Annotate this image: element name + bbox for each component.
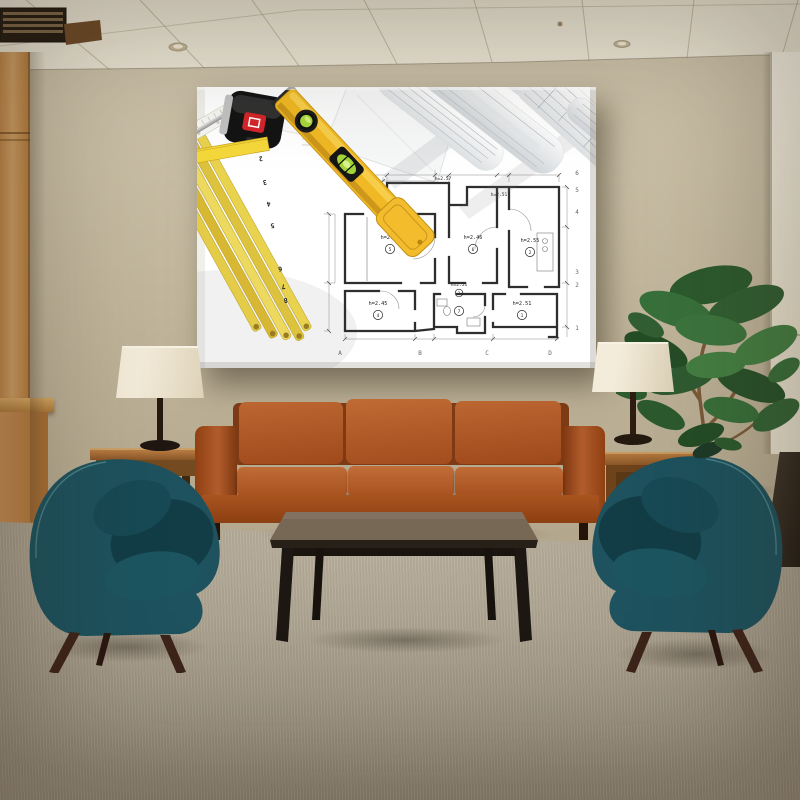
ceiling-surface <box>0 0 800 70</box>
room-height-label: h=2.51 <box>513 301 532 307</box>
armchair-leg <box>626 632 652 673</box>
table-lamp-left <box>116 346 204 462</box>
grid-column-label: D <box>548 350 552 357</box>
room-number: 7 <box>458 309 461 315</box>
grid-column-label: C <box>485 350 489 357</box>
coffee-table-leg <box>312 548 324 620</box>
coffee-table-edge <box>270 540 538 548</box>
plant-frond <box>688 432 748 472</box>
coffee-table-apron <box>290 548 518 556</box>
armchair-right <box>582 445 800 675</box>
coffee-table <box>264 506 544 654</box>
waiting-room-scene: h=2.48 5 h=2.46 6 h=2.55 2 h=2.45 4 7 h=… <box>0 0 800 800</box>
armchair-leg <box>96 633 111 666</box>
grid-row-label: 6 <box>575 170 579 177</box>
recessed-light <box>169 43 187 51</box>
wood-panel-seam <box>0 132 30 134</box>
ceiling <box>0 0 800 72</box>
room-number: 2 <box>529 250 532 256</box>
sofa-seat-cushion <box>237 467 347 497</box>
blueprint-artwork: h=2.48 5 h=2.46 6 h=2.55 2 h=2.45 4 7 h=… <box>197 87 596 368</box>
armchair-leg <box>708 630 724 666</box>
room-height-label: h=2.51 <box>451 282 468 288</box>
grid-column-label: B <box>418 350 422 357</box>
room-number: 6 <box>472 247 475 253</box>
lamp-shade <box>592 342 674 392</box>
sofa-seat-cushion <box>348 466 454 497</box>
room-number: 4 <box>377 313 380 319</box>
wood-paneling <box>0 52 30 404</box>
grid-column-label: A <box>338 350 342 357</box>
lamp-stem <box>157 398 163 442</box>
recessed-light <box>614 41 630 48</box>
armchair-leg <box>49 632 80 673</box>
room-number: 1 <box>521 313 524 319</box>
coffee-table-leg <box>484 548 496 620</box>
sofa-back-cushion <box>346 399 452 464</box>
room-height-label: h=2.46 <box>464 235 483 241</box>
wall-art-canvas: h=2.48 5 h=2.46 6 h=2.55 2 h=2.45 4 7 h=… <box>197 87 596 368</box>
grid-row-label: 3 <box>575 269 579 276</box>
lamp-stem <box>630 392 636 436</box>
wood-panel-seam <box>0 139 30 141</box>
coffee-table-leg <box>276 548 294 642</box>
armchair-left <box>12 448 232 673</box>
grid-row-label: 1 <box>575 325 579 332</box>
room-height-label: h=2.55 <box>521 238 540 244</box>
armchair-leg <box>160 635 186 673</box>
coffee-table-leg <box>514 548 532 642</box>
room-number: 5 <box>389 247 392 253</box>
grid-row-label: 5 <box>575 187 579 194</box>
sprinkler-head <box>558 22 563 27</box>
lamp-base <box>614 434 652 445</box>
grid-row-label: 4 <box>575 209 579 216</box>
hall-height-label: h=2.57 <box>435 176 452 182</box>
lamp-shade <box>116 346 204 398</box>
sofa-back-cushion <box>455 401 561 464</box>
sofa-back-cushion <box>239 402 343 464</box>
room-height-label: h=2.45 <box>369 301 388 307</box>
grid-row-label: 2 <box>575 282 579 289</box>
sofa-seat-cushion <box>455 467 563 497</box>
armchair-leg <box>732 629 763 673</box>
tape-body-logo <box>242 112 267 134</box>
